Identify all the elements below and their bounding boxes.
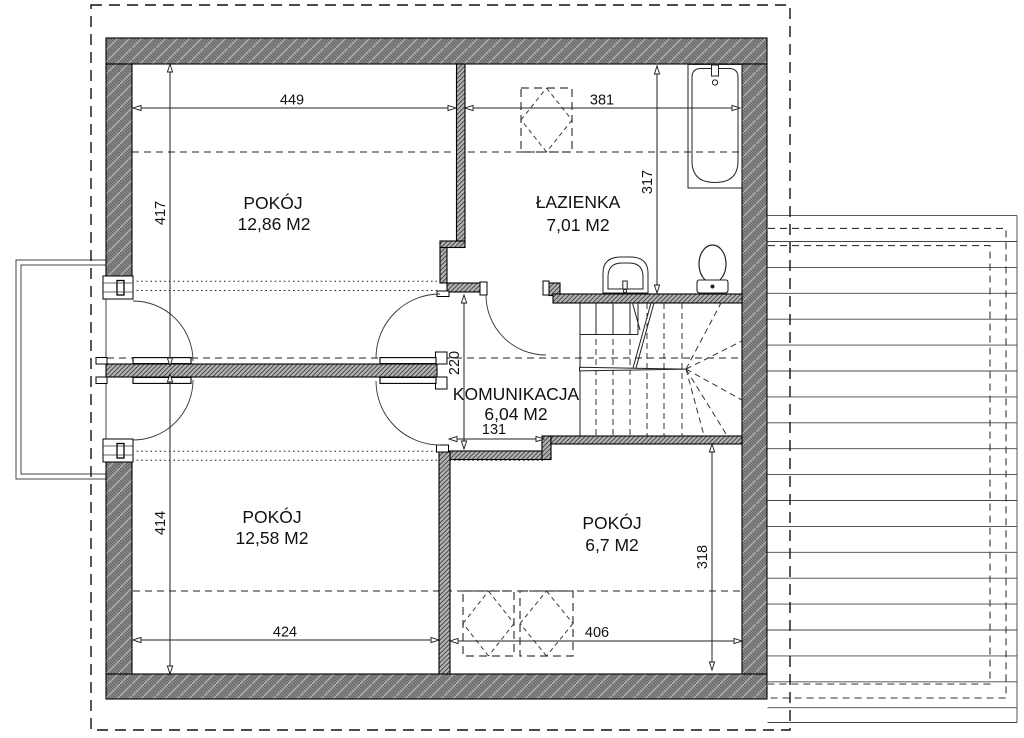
svg-text:381: 381 [590, 93, 614, 109]
svg-text:317: 317 [640, 170, 656, 194]
svg-text:POKÓJ: POKÓJ [242, 506, 301, 527]
svg-text:220: 220 [447, 351, 463, 375]
svg-text:449: 449 [280, 93, 304, 109]
svg-text:318: 318 [695, 545, 711, 569]
svg-text:6,7 M2: 6,7 M2 [585, 535, 639, 555]
svg-text:131: 131 [482, 422, 506, 438]
svg-text:12,58 M2: 12,58 M2 [236, 528, 309, 548]
svg-text:ŁAZIENKA: ŁAZIENKA [536, 192, 621, 212]
svg-text:12,86 M2: 12,86 M2 [238, 214, 311, 234]
svg-text:POKÓJ: POKÓJ [582, 512, 641, 533]
svg-text:6,04 M2: 6,04 M2 [484, 404, 547, 424]
svg-text:POKÓJ: POKÓJ [243, 192, 302, 213]
svg-text:417: 417 [153, 201, 169, 225]
svg-text:414: 414 [153, 511, 169, 535]
svg-text:406: 406 [585, 625, 609, 641]
svg-text:7,01 M2: 7,01 M2 [546, 215, 609, 235]
svg-text:424: 424 [273, 625, 297, 641]
svg-text:KOMUNIKACJA: KOMUNIKACJA [453, 384, 580, 404]
